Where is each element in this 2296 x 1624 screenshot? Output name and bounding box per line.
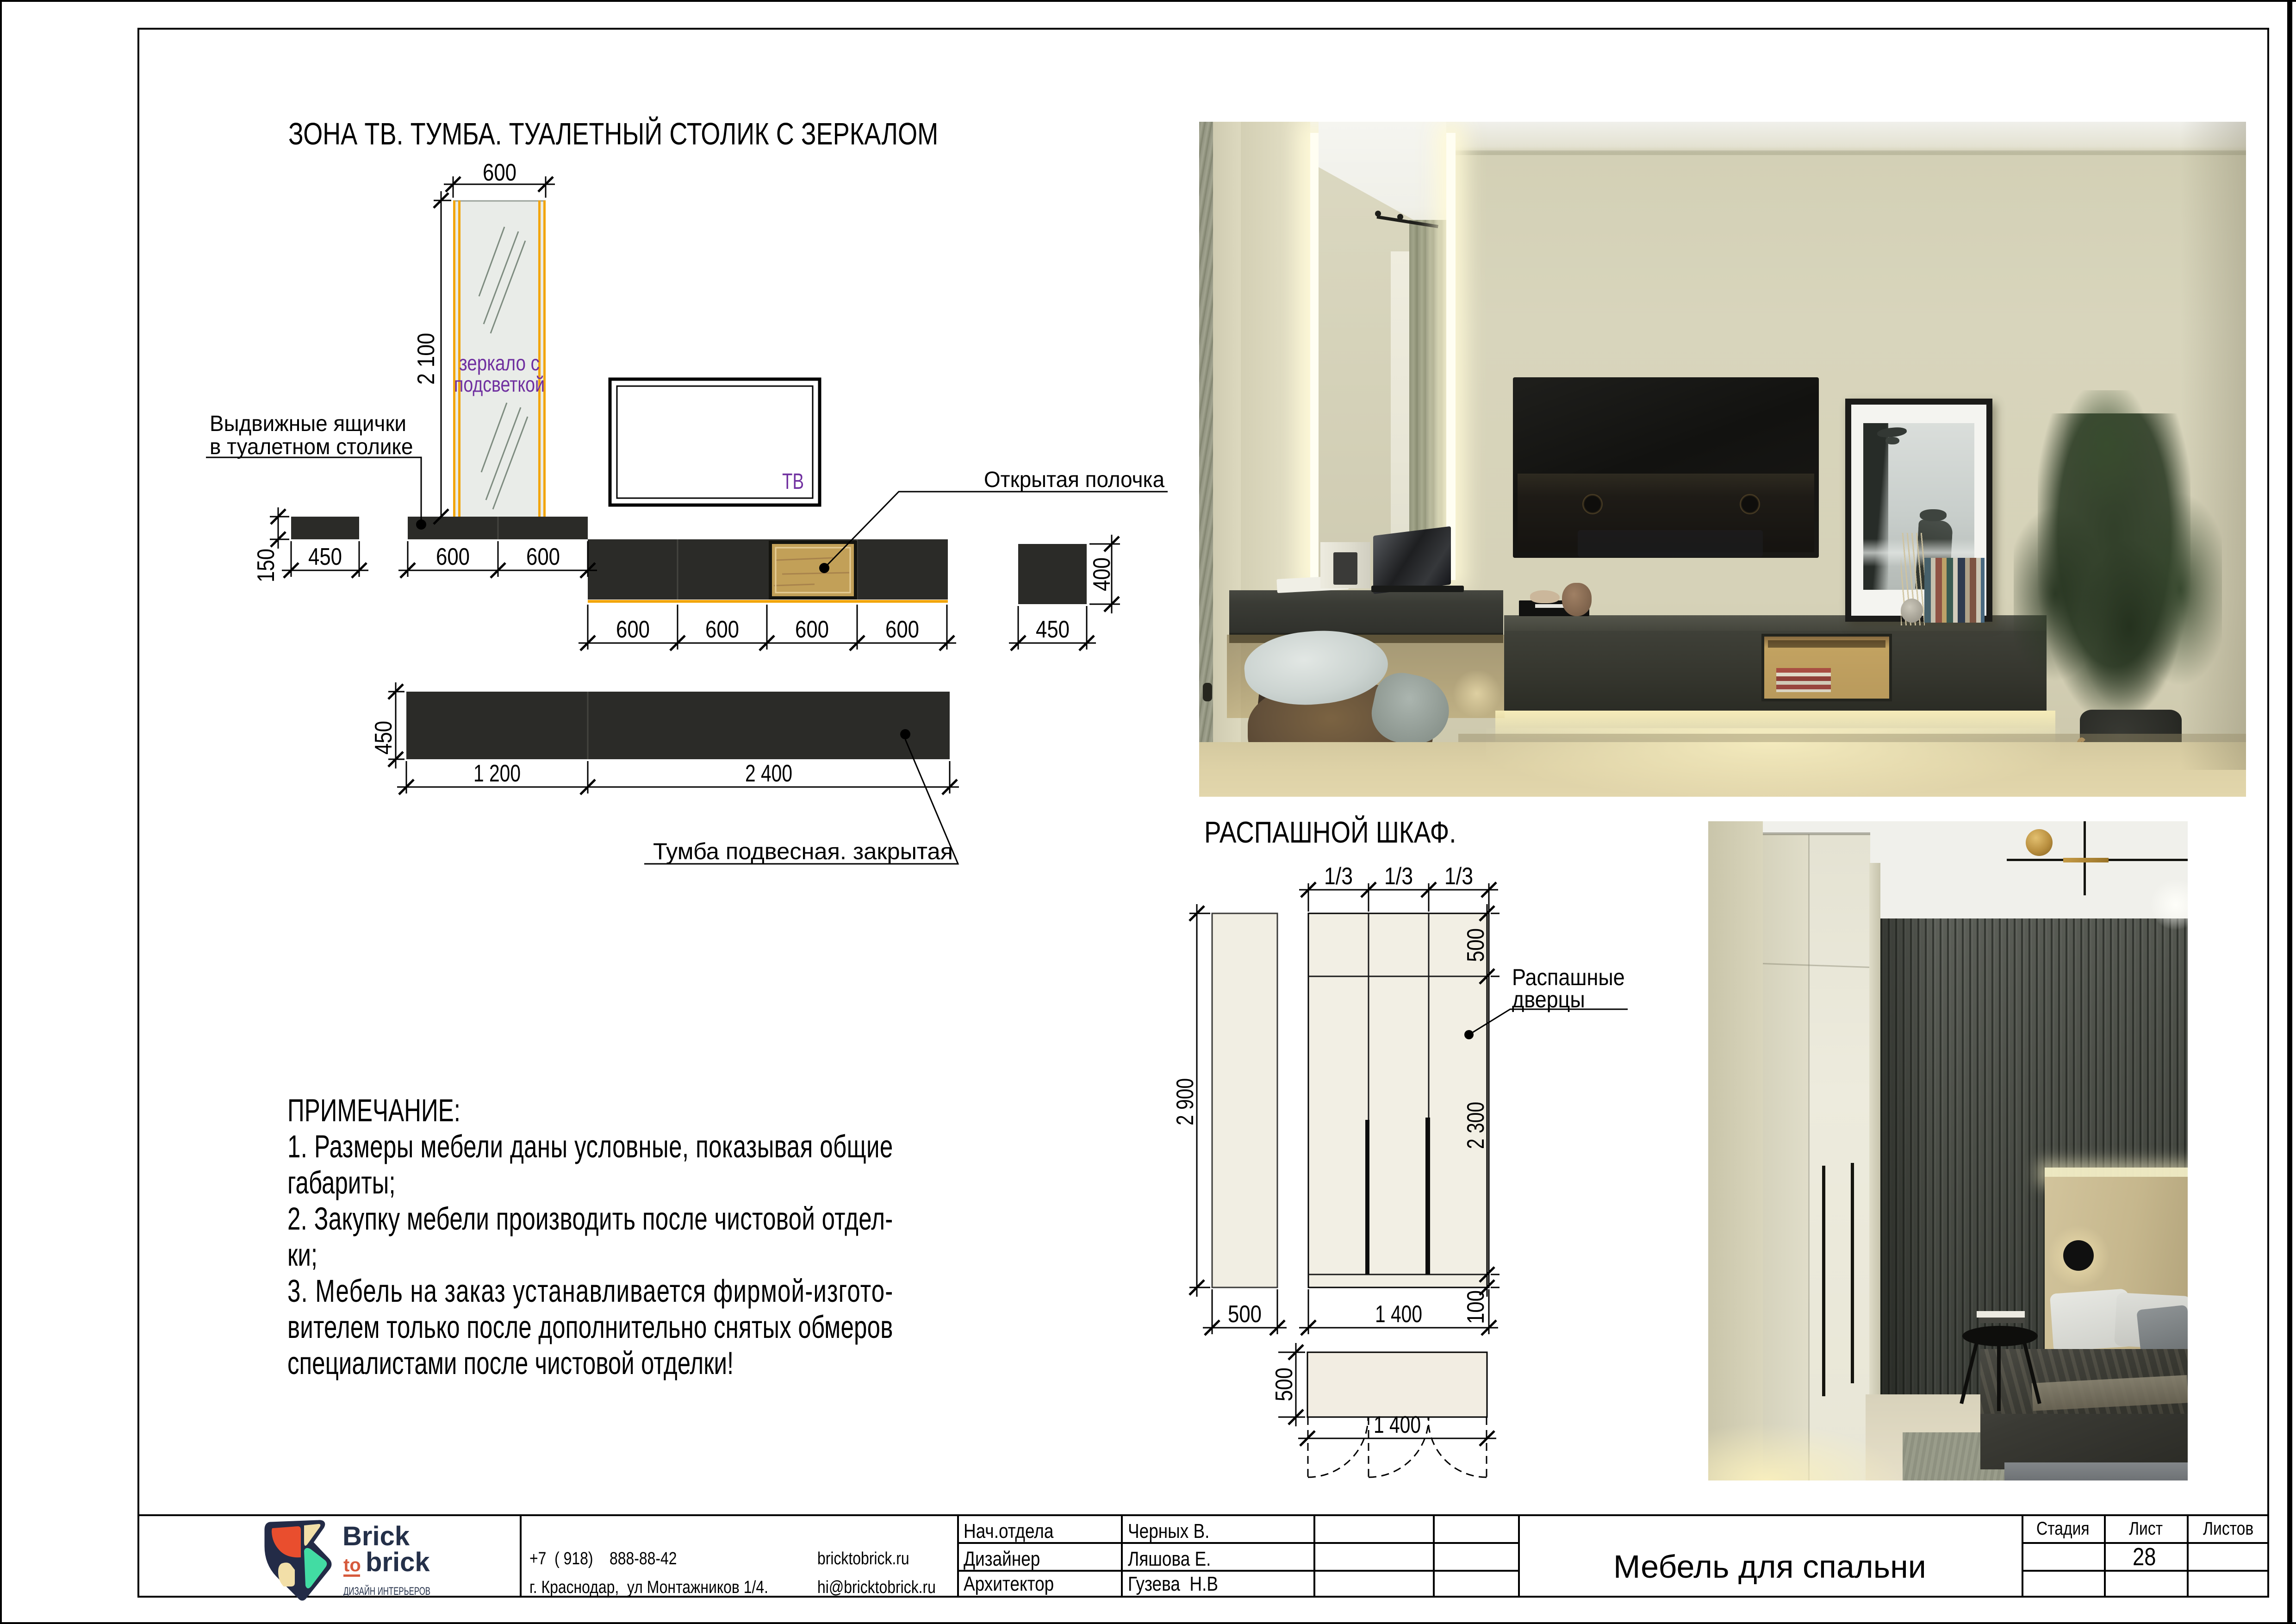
svg-text:100: 100 xyxy=(1462,1290,1489,1324)
svg-text:1 400: 1 400 xyxy=(1374,1412,1421,1438)
svg-text:brick: brick xyxy=(366,1547,430,1577)
svg-text:600: 600 xyxy=(705,616,739,643)
svg-text:2. Закупку мебели производить: 2. Закупку мебели производить после чист… xyxy=(287,1200,893,1236)
svg-text:2 400: 2 400 xyxy=(745,760,792,787)
svg-text:РАСПАШНОЙ ШКАФ.: РАСПАШНОЙ ШКАФ. xyxy=(1204,816,1456,849)
svg-text:3. Мебель на заказ устанавлива: 3. Мебель на заказ устанавливается фирмо… xyxy=(287,1273,893,1308)
svg-text:1/3: 1/3 xyxy=(1324,863,1353,890)
svg-text:600: 600 xyxy=(483,159,516,186)
svg-text:500: 500 xyxy=(1271,1368,1298,1401)
svg-text:500: 500 xyxy=(1228,1301,1262,1328)
svg-text:450: 450 xyxy=(1036,616,1070,643)
svg-text:ПРИМЕЧАНИЕ:: ПРИМЕЧАНИЕ: xyxy=(287,1092,460,1128)
svg-text:1/3: 1/3 xyxy=(1384,863,1413,890)
svg-text:габариты;: габариты; xyxy=(287,1164,396,1200)
svg-text:в туалетном столике: в туалетном столике xyxy=(210,434,413,459)
svg-text:подсветкой: подсветкой xyxy=(454,372,545,396)
svg-text:зеркало с: зеркало с xyxy=(459,351,540,375)
svg-text:Открытая полочка: Открытая полочка xyxy=(984,467,1165,492)
svg-text:2 900: 2 900 xyxy=(1172,1078,1199,1125)
svg-text:2 100: 2 100 xyxy=(413,333,440,385)
svg-text:to: to xyxy=(343,1555,361,1575)
svg-text:600: 600 xyxy=(526,543,560,570)
svg-text:1/3: 1/3 xyxy=(1444,863,1473,890)
svg-text:1 400: 1 400 xyxy=(1375,1301,1422,1328)
svg-text:ки;: ки; xyxy=(287,1237,317,1272)
svg-text:450: 450 xyxy=(308,543,342,570)
svg-text:400: 400 xyxy=(1089,557,1115,591)
svg-text:2 300: 2 300 xyxy=(1462,1102,1489,1149)
svg-text:1 200: 1 200 xyxy=(473,760,521,787)
svg-text:500: 500 xyxy=(1462,928,1489,962)
svg-text:ЗОНА ТВ. ТУМБА. ТУАЛЕТНЫЙ СТОЛ: ЗОНА ТВ. ТУМБА. ТУАЛЕТНЫЙ СТОЛИК С ЗЕРКА… xyxy=(288,116,938,151)
svg-text:1. Размеры мебели даны условны: 1. Размеры мебели даны условные, показыв… xyxy=(287,1128,893,1164)
svg-text:600: 600 xyxy=(616,616,650,643)
svg-text:600: 600 xyxy=(885,616,919,643)
svg-text:600: 600 xyxy=(795,616,829,643)
svg-text:150: 150 xyxy=(253,549,280,582)
svg-text:450: 450 xyxy=(370,721,397,755)
svg-text:вителем только после дополните: вителем только после дополнительно сняты… xyxy=(287,1309,893,1344)
svg-text:ДИЗАЙН ИНТЕРЬЕРОВ: ДИЗАЙН ИНТЕРЬЕРОВ xyxy=(343,1585,430,1598)
svg-text:Выдвижные ящички: Выдвижные ящички xyxy=(210,411,406,436)
svg-text:ТВ: ТВ xyxy=(782,469,804,494)
svg-text:Тумба подвесная. закрытая: Тумба подвесная. закрытая xyxy=(653,838,953,864)
svg-text:600: 600 xyxy=(436,543,470,570)
svg-text:специалистами после чистовой о: специалистами после чистовой отделки! xyxy=(287,1345,734,1380)
